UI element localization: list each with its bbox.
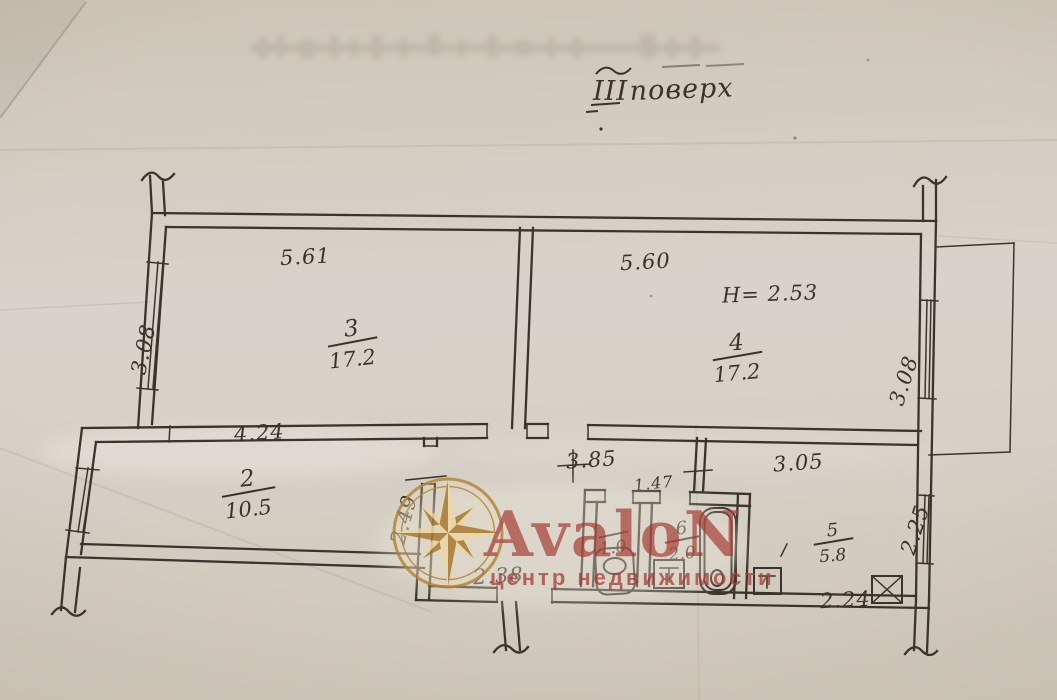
title-underline-2 — [586, 111, 598, 112]
dim-room3-width: 5.61 — [279, 244, 331, 271]
svg-text:5: 5 — [826, 520, 839, 542]
room-label-4: 4 17.2 — [710, 328, 764, 387]
svg-text:4: 4 — [727, 329, 745, 356]
agency-watermark: AvaloN центр недвижимости — [375, 479, 775, 607]
svg-text:17.2: 17.2 — [713, 359, 762, 387]
svg-text:2: 2 — [238, 465, 256, 492]
dim-hall-width: 3.85 — [565, 446, 617, 473]
svg-text:5.8: 5.8 — [818, 545, 847, 567]
balcony-outline — [929, 243, 1014, 455]
ink-dot — [599, 127, 602, 130]
ceiling-height-note: H= 2.53 — [721, 280, 819, 307]
bleedthrough-smudge — [250, 34, 720, 59]
dim-room5-width: 3.05 — [772, 449, 824, 476]
floor-title-roman: III — [592, 76, 628, 107]
room-label-5: 5 5.8 — [813, 518, 855, 567]
svg-text:10.5: 10.5 — [224, 495, 273, 524]
dim-room2-width: 4.24 — [232, 419, 285, 447]
pen-dash — [662, 65, 700, 67]
svg-text:3: 3 — [343, 315, 360, 342]
floor-title-word: поверх — [629, 72, 734, 107]
floorplan-scan-svg: III поверх — [0, 0, 1057, 700]
svg-text:17.2: 17.2 — [328, 345, 377, 374]
floor-plan-scan-photo: III поверх — [0, 0, 1057, 700]
dim-room4-width: 5.60 — [619, 249, 671, 276]
dim-room5-bottom: 2.24 — [818, 587, 871, 614]
watermark-brand-text: AvaloN — [483, 497, 743, 571]
room-label-3: 3 17.2 — [325, 314, 380, 374]
title-flourish — [596, 68, 631, 74]
pen-dash — [706, 64, 744, 66]
vent-shaft-symbol — [872, 576, 902, 603]
dim-room4-depth: 3.08 — [885, 353, 924, 409]
floor-title: III поверх — [586, 64, 744, 131]
watermark-tagline-text: центр недвижимости — [490, 565, 775, 590]
